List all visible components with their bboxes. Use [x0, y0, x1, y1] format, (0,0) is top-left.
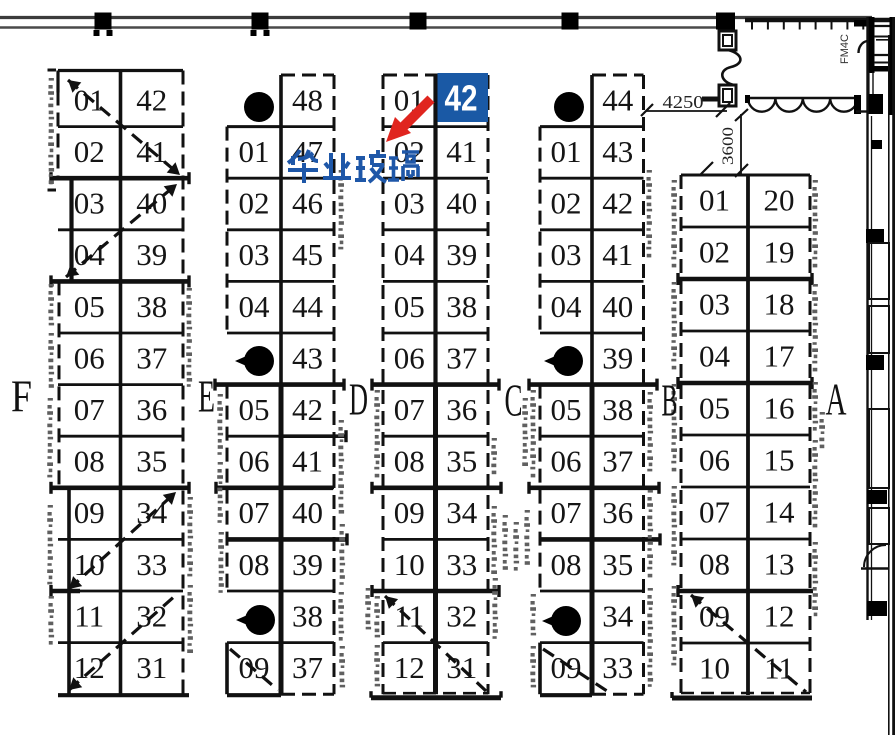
svg-text:4250: 4250 — [663, 92, 704, 112]
svg-text:42: 42 — [292, 392, 323, 427]
svg-text:38: 38 — [602, 392, 633, 427]
svg-text:04: 04 — [394, 237, 426, 272]
svg-text:38: 38 — [292, 598, 323, 633]
svg-text:02: 02 — [699, 235, 730, 270]
svg-text:05: 05 — [239, 392, 270, 427]
svg-text:06: 06 — [239, 444, 270, 479]
svg-text:B: B — [662, 375, 678, 426]
svg-text:08: 08 — [551, 547, 582, 582]
svg-text:14: 14 — [764, 495, 796, 530]
svg-text:44: 44 — [602, 82, 634, 117]
svg-text:06: 06 — [74, 340, 105, 375]
svg-text:08: 08 — [74, 444, 105, 479]
svg-text:13: 13 — [764, 547, 795, 582]
svg-text:11: 11 — [74, 598, 104, 633]
svg-text:40: 40 — [292, 495, 323, 530]
svg-text:02: 02 — [74, 134, 105, 169]
svg-text:D: D — [349, 374, 368, 425]
svg-text:36: 36 — [136, 392, 167, 427]
svg-text:04: 04 — [239, 289, 271, 324]
svg-text:05: 05 — [394, 289, 425, 324]
svg-text:39: 39 — [136, 237, 167, 272]
svg-text:03: 03 — [74, 186, 105, 221]
svg-text:46: 46 — [292, 186, 323, 221]
svg-text:39: 39 — [446, 237, 477, 272]
svg-text:05: 05 — [699, 391, 730, 426]
svg-text:48: 48 — [292, 82, 323, 117]
svg-text:36: 36 — [446, 392, 477, 427]
svg-text:09: 09 — [74, 495, 105, 530]
svg-text:16: 16 — [764, 391, 795, 426]
svg-text:02: 02 — [551, 186, 582, 221]
svg-text:18: 18 — [764, 287, 795, 322]
svg-text:07: 07 — [699, 495, 730, 530]
svg-text:07: 07 — [74, 392, 105, 427]
svg-text:42: 42 — [602, 186, 633, 221]
svg-text:43: 43 — [602, 134, 633, 169]
svg-text:07: 07 — [394, 392, 425, 427]
svg-text:41: 41 — [446, 134, 477, 169]
svg-text:06: 06 — [551, 444, 582, 479]
svg-text:04: 04 — [74, 237, 106, 272]
svg-text:34: 34 — [446, 495, 478, 530]
svg-text:F: F — [11, 371, 32, 422]
svg-text:37: 37 — [446, 340, 477, 375]
svg-text:33: 33 — [446, 547, 477, 582]
svg-text:40: 40 — [446, 186, 477, 221]
svg-text:38: 38 — [446, 289, 477, 324]
svg-text:E: E — [198, 371, 215, 422]
svg-text:07: 07 — [551, 495, 582, 530]
svg-text:36: 36 — [602, 495, 633, 530]
svg-text:09: 09 — [394, 495, 425, 530]
svg-text:01: 01 — [699, 183, 730, 218]
svg-text:10: 10 — [699, 651, 730, 686]
svg-text:10: 10 — [74, 547, 105, 582]
svg-text:15: 15 — [764, 443, 795, 478]
svg-text:A: A — [826, 374, 847, 425]
svg-text:12: 12 — [764, 599, 795, 634]
svg-text:19: 19 — [764, 235, 795, 270]
svg-text:FM4C: FM4C — [839, 34, 851, 64]
svg-text:10: 10 — [394, 547, 425, 582]
svg-text:43: 43 — [292, 340, 323, 375]
svg-text:03: 03 — [239, 237, 270, 272]
svg-text:06: 06 — [394, 340, 425, 375]
svg-text:08: 08 — [699, 547, 730, 582]
svg-text:33: 33 — [136, 547, 167, 582]
svg-text:03: 03 — [551, 237, 582, 272]
svg-text:09: 09 — [551, 650, 582, 685]
svg-text:31: 31 — [446, 650, 477, 685]
svg-text:06: 06 — [699, 443, 730, 478]
svg-text:37: 37 — [136, 340, 167, 375]
svg-text:C: C — [505, 375, 523, 426]
svg-text:37: 37 — [292, 650, 323, 685]
svg-text:42: 42 — [445, 78, 478, 119]
svg-text:45: 45 — [292, 237, 323, 272]
svg-text:41: 41 — [292, 444, 323, 479]
svg-text:35: 35 — [602, 547, 633, 582]
svg-text:35: 35 — [446, 444, 477, 479]
svg-text:38: 38 — [136, 289, 167, 324]
svg-text:42: 42 — [136, 82, 167, 117]
svg-text:08: 08 — [394, 444, 425, 479]
svg-text:34: 34 — [602, 598, 634, 633]
svg-text:40: 40 — [602, 289, 633, 324]
svg-text:07: 07 — [239, 495, 270, 530]
svg-text:39: 39 — [602, 340, 633, 375]
svg-text:01: 01 — [239, 134, 270, 169]
svg-text:08: 08 — [239, 547, 270, 582]
svg-text:04: 04 — [699, 339, 731, 374]
svg-text:41: 41 — [602, 237, 633, 272]
svg-text:39: 39 — [292, 547, 323, 582]
svg-text:12: 12 — [394, 650, 425, 685]
svg-text:44: 44 — [292, 289, 324, 324]
svg-text:04: 04 — [551, 289, 583, 324]
svg-text:05: 05 — [74, 289, 105, 324]
svg-text:37: 37 — [602, 444, 633, 479]
svg-text:12: 12 — [74, 650, 105, 685]
svg-text:33: 33 — [602, 650, 633, 685]
svg-text:32: 32 — [446, 598, 477, 633]
svg-text:31: 31 — [136, 650, 167, 685]
svg-text:20: 20 — [764, 183, 795, 218]
svg-text:03: 03 — [699, 287, 730, 322]
svg-text:3600: 3600 — [720, 127, 737, 165]
svg-text:03: 03 — [394, 186, 425, 221]
svg-text:35: 35 — [136, 444, 167, 479]
svg-text:02: 02 — [239, 186, 270, 221]
svg-text:17: 17 — [764, 339, 795, 374]
svg-text:05: 05 — [551, 392, 582, 427]
svg-text:01: 01 — [551, 134, 582, 169]
